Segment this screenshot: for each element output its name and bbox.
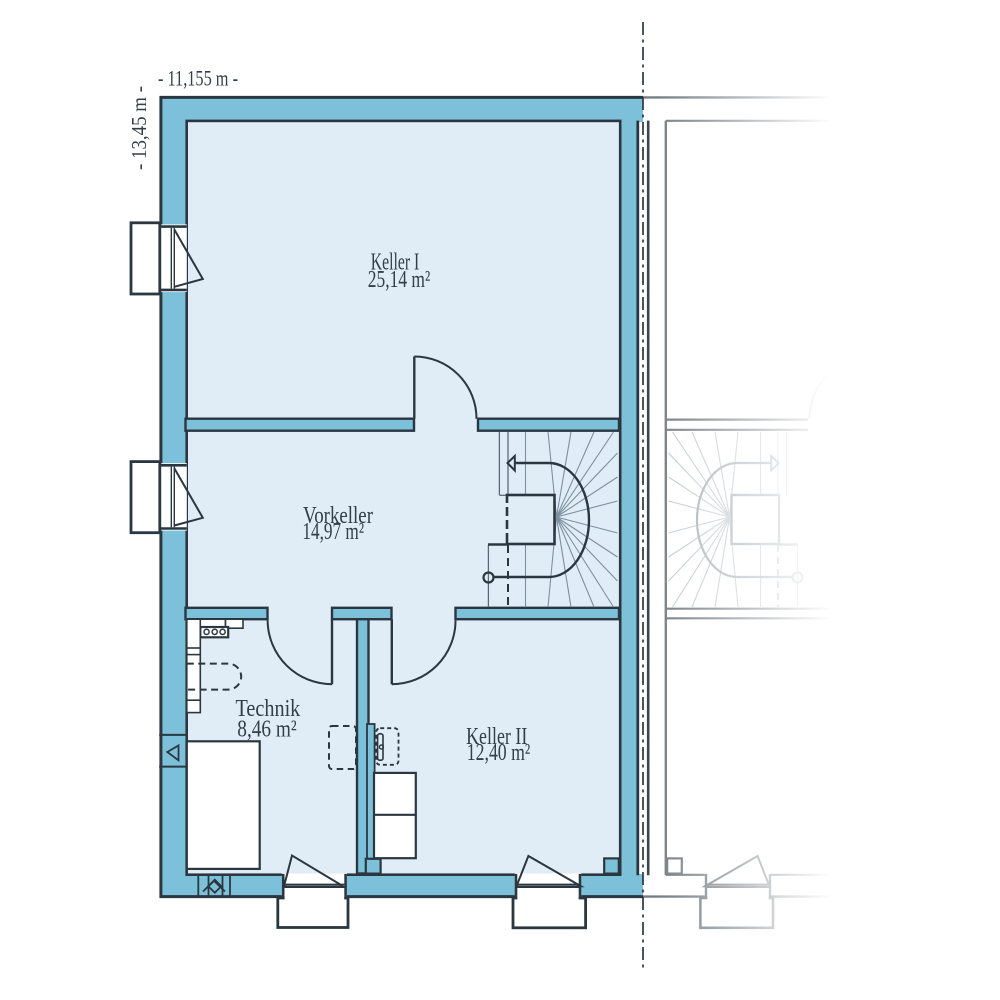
svg-text:- 11,155 m -: - 11,155 m - xyxy=(158,66,238,91)
svg-text:14,97 m²: 14,97 m² xyxy=(302,519,364,545)
svg-text:8,46 m²: 8,46 m² xyxy=(237,717,296,743)
svg-text:- 13,45 m -: - 13,45 m - xyxy=(127,86,151,170)
svg-text:25,14 m²: 25,14 m² xyxy=(368,267,431,293)
svg-text:12,40 m²: 12,40 m² xyxy=(467,740,530,766)
